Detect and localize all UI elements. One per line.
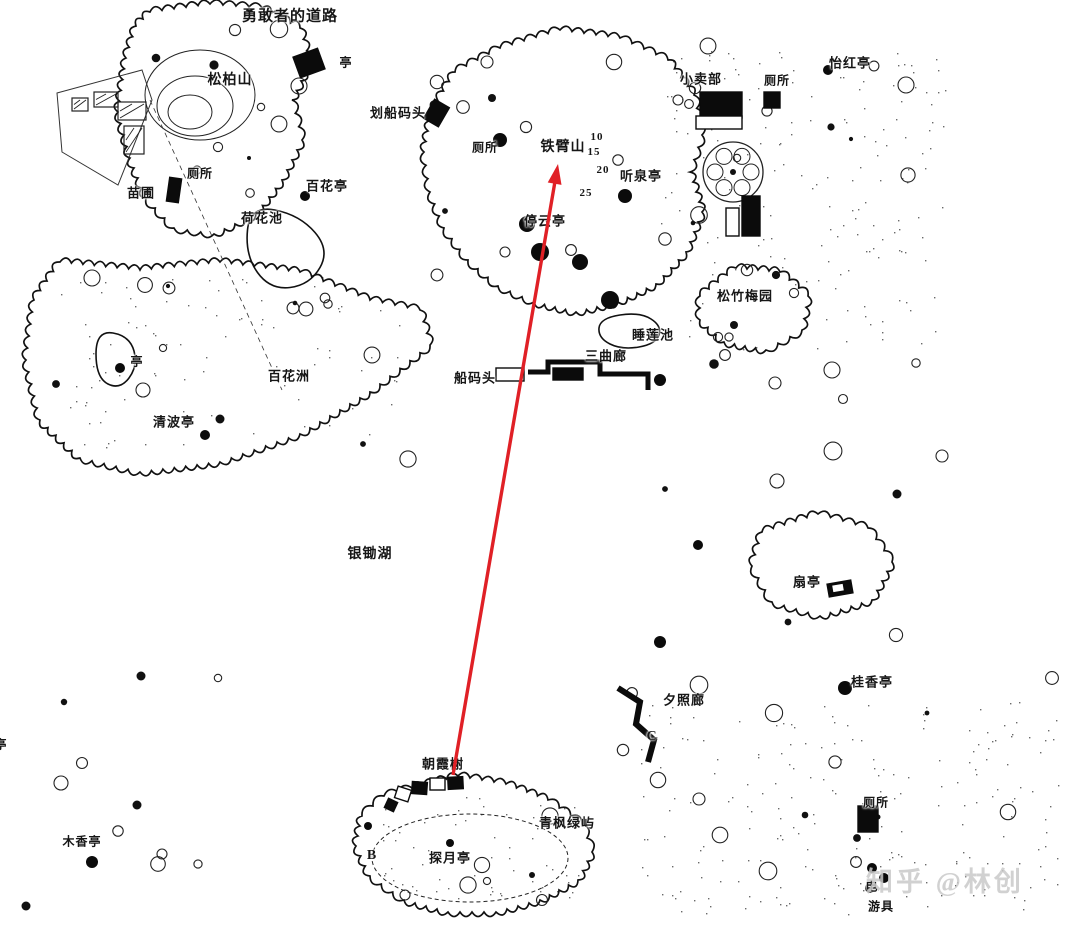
red-direction-arrow-head bbox=[548, 164, 562, 185]
red-direction-arrow-shaft bbox=[453, 180, 555, 775]
watermark: 知乎 @林创 bbox=[866, 860, 1024, 899]
park-map: 勇敢者的道路松柏山划船码头厕所苗圃百花亭荷花池厕所铁臂山10152025听泉亭小… bbox=[0, 0, 1080, 925]
arrow-overlay bbox=[0, 0, 1080, 925]
